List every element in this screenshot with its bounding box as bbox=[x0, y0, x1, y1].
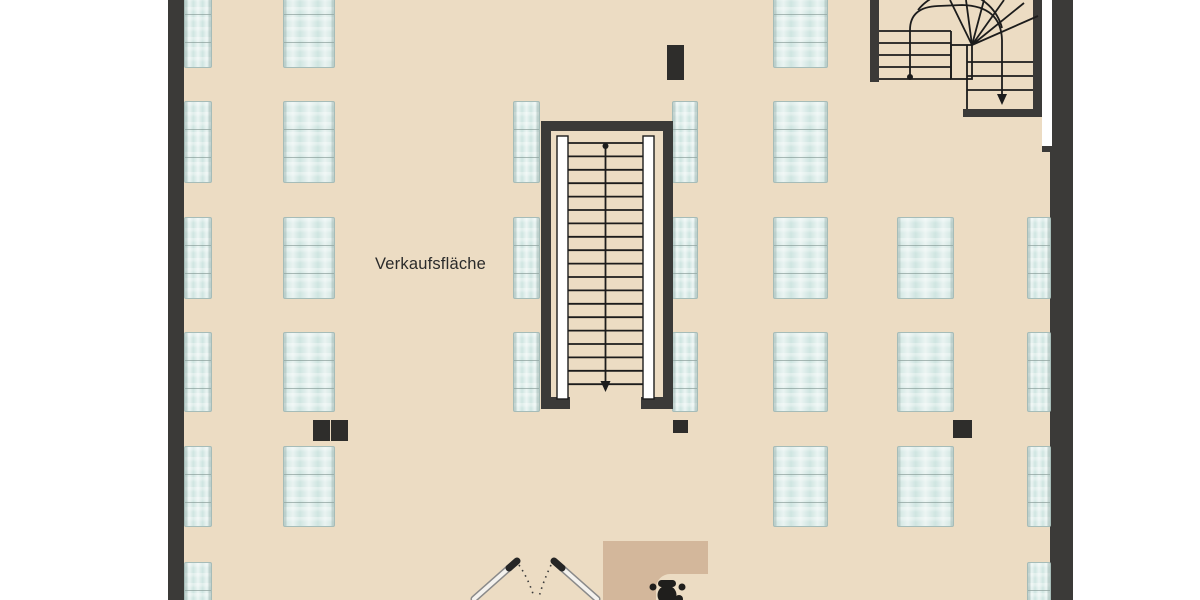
right-wall bbox=[1050, 0, 1073, 600]
shelf-unit bbox=[184, 332, 212, 412]
floor-plan: Verkaufsfläche bbox=[0, 0, 1200, 600]
shelf-unit bbox=[283, 332, 335, 412]
shelf-unit bbox=[513, 101, 540, 183]
shelf-unit bbox=[897, 446, 954, 527]
shelf-unit bbox=[184, 562, 212, 600]
column-pillar bbox=[313, 420, 330, 441]
shelf-unit bbox=[1027, 446, 1051, 527]
column-pillar bbox=[953, 420, 972, 438]
shelf-unit bbox=[773, 0, 828, 68]
sales-area-label: Verkaufsfläche bbox=[375, 255, 486, 274]
shelf-unit bbox=[897, 332, 954, 412]
shelf-unit bbox=[773, 446, 828, 527]
left-wall bbox=[168, 0, 184, 600]
shelf-unit bbox=[184, 446, 212, 527]
shelf-unit bbox=[283, 217, 335, 299]
column-pillar bbox=[331, 420, 348, 441]
shelf-unit bbox=[283, 0, 335, 68]
column-pillar bbox=[673, 420, 688, 433]
shelf-unit bbox=[184, 217, 212, 299]
shelf-unit bbox=[513, 217, 540, 299]
shelf-unit bbox=[513, 332, 540, 412]
column-pillar bbox=[667, 45, 684, 80]
shelf-unit bbox=[283, 446, 335, 527]
shelf-unit bbox=[672, 332, 698, 412]
shelf-unit bbox=[283, 101, 335, 183]
shelf-unit bbox=[897, 217, 954, 299]
shelf-unit bbox=[1027, 562, 1051, 600]
shelf-unit bbox=[1027, 332, 1051, 412]
shelf-unit bbox=[672, 217, 698, 299]
shelf-unit bbox=[672, 101, 698, 183]
shelf-unit bbox=[773, 332, 828, 412]
shelf-unit bbox=[1027, 217, 1051, 299]
shelf-unit bbox=[773, 101, 828, 183]
shelf-unit bbox=[773, 217, 828, 299]
shelf-unit bbox=[184, 0, 212, 68]
shelf-unit bbox=[184, 101, 212, 183]
